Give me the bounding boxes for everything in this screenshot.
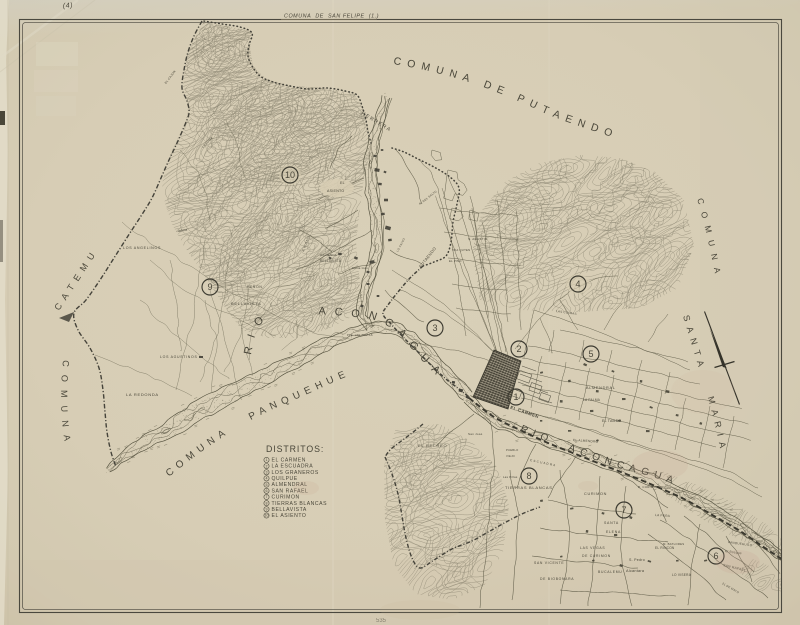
svg-text:S. AGUSTIN: S. AGUSTIN (468, 237, 487, 241)
svg-text:2: 2 (516, 344, 521, 354)
svg-text:EL RINCON: EL RINCON (655, 546, 675, 550)
svg-text:ALMENDRAL: ALMENDRAL (586, 386, 616, 390)
svg-text:EL CARMEN: EL CARMEN (272, 458, 306, 464)
svg-text:Las Piñas: Las Piñas (503, 475, 518, 479)
svg-text:2: 2 (266, 464, 268, 468)
svg-text:10: 10 (285, 170, 295, 180)
svg-text:535: 535 (376, 618, 387, 624)
svg-text:DE CURIMON: DE CURIMON (582, 554, 611, 558)
svg-text:LOS AGUSTINOS: LOS AGUSTINOS (160, 355, 198, 359)
svg-text:San José: San José (468, 432, 483, 436)
svg-text:EL ASIENTO: EL ASIENTO (272, 513, 307, 519)
svg-text:DISTRITOS:: DISTRITOS: (266, 444, 324, 454)
svg-text:LOS GRANEROS: LOS GRANEROS (272, 470, 319, 476)
svg-text:VIEJO: VIEJO (506, 454, 515, 458)
svg-text:8: 8 (266, 501, 268, 505)
svg-text:9: 9 (207, 282, 212, 292)
svg-text:CURIMON: CURIMON (272, 495, 300, 501)
svg-text:7: 7 (621, 505, 626, 515)
svg-text:EL: EL (340, 181, 345, 185)
svg-text:BUCALEMU: BUCALEMU (598, 570, 622, 574)
svg-text:DE BIOBONARA: DE BIOBONARA (540, 577, 574, 581)
svg-text:BELLAVISTA: BELLAVISTA (320, 259, 342, 263)
svg-text:6: 6 (266, 489, 268, 493)
svg-text:8: 8 (526, 471, 531, 481)
svg-text:4: 4 (266, 477, 268, 481)
svg-text:BELLAVISTA: BELLAVISTA (231, 301, 261, 306)
svg-text:LA REDONDA: LA REDONDA (126, 392, 159, 397)
svg-text:SANTA: SANTA (604, 521, 619, 525)
svg-text:Santa Inés: Santa Inés (352, 266, 368, 270)
svg-text:TIERRAS BLANCAS: TIERRAS BLANCAS (272, 501, 328, 507)
svg-text:EL PINO: EL PINO (449, 259, 462, 263)
svg-text:HACIENDA: HACIENDA (320, 253, 337, 257)
svg-text:Alcantara: Alcantara (626, 569, 645, 573)
svg-text:SAN VICENTE: SAN VICENTE (534, 561, 564, 565)
svg-text:QUILPUE: QUILPUE (272, 476, 298, 482)
svg-text:3: 3 (432, 323, 437, 333)
svg-text:PUEBLO: PUEBLO (506, 448, 518, 452)
svg-text:ASIENTO: ASIENTO (327, 189, 344, 193)
svg-text:9: 9 (266, 508, 268, 512)
svg-text:4: 4 (575, 279, 580, 289)
svg-text:LOS ANGELINOS: LOS ANGELINOS (123, 246, 161, 250)
svg-text:LA ESCUADRA: LA ESCUADRA (272, 464, 314, 470)
svg-text:EL RECREO: EL RECREO (418, 443, 447, 448)
svg-text:B. CURIMON: B. CURIMON (638, 485, 659, 489)
svg-text:5: 5 (588, 349, 593, 359)
svg-text:M. BATLORES: M. BATLORES (663, 542, 684, 546)
svg-text:5: 5 (266, 483, 268, 487)
svg-text:1: 1 (266, 458, 268, 462)
svg-text:1: 1 (513, 392, 518, 402)
svg-text:( 4 ): ( 4 ) (63, 2, 73, 10)
svg-text:S. Pedro: S. Pedro (629, 558, 645, 562)
svg-text:LAS VEGAS: LAS VEGAS (580, 546, 605, 550)
svg-text:BELLAVISTA: BELLAVISTA (272, 507, 307, 513)
svg-text:EL TAMBO: EL TAMBO (602, 419, 621, 423)
svg-text:7: 7 (266, 495, 268, 499)
svg-text:ELENA: ELENA (606, 530, 621, 534)
svg-text:LA PALMA: LA PALMA (583, 398, 601, 402)
svg-text:PTE. LAS JUNTAS: PTE. LAS JUNTAS (347, 333, 373, 337)
svg-text:TIERRAS BLANCAS: TIERRAS BLANCAS (505, 485, 553, 490)
svg-text:VDA QUTEN: VDA QUTEN (452, 248, 470, 252)
svg-text:3: 3 (266, 471, 268, 475)
svg-text:LO VISERA: LO VISERA (672, 573, 692, 577)
svg-text:PEÑON: PEÑON (247, 284, 263, 289)
svg-text:COMUNA DE SAN FELIPE (1.): COMUNA DE SAN FELIPE (1.) (284, 14, 379, 20)
svg-text:10: 10 (265, 514, 269, 518)
svg-text:CURIMON: CURIMON (584, 492, 607, 496)
